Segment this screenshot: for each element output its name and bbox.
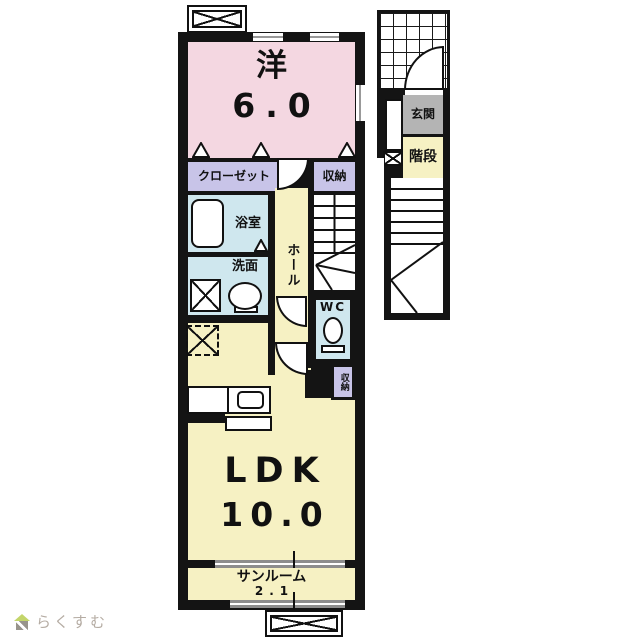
room-hall-label: ホール (285, 243, 299, 288)
room-closet-label: クローゼット (198, 170, 270, 183)
room-western-label: 洋 (256, 50, 287, 83)
room-stairs-landing: 階段 (403, 137, 443, 178)
kitchen-counter-low-icon (225, 416, 272, 431)
vent-window-cross-icon (192, 10, 242, 28)
toilet-base-icon (321, 345, 345, 353)
kitchen-sink-icon (237, 391, 264, 409)
site-watermark: らくすむ (14, 611, 108, 632)
room-storage-top: 収納 (314, 162, 355, 191)
stairs-icon (314, 195, 355, 290)
door-direction-icon (316, 368, 326, 380)
room-entrance: 玄関 (403, 95, 443, 134)
kitchen-counter-edge (187, 414, 225, 423)
wall (268, 323, 275, 375)
room-ldk-size: 10.0 (220, 498, 329, 533)
stairs-icon (391, 178, 443, 313)
annex-notch (377, 158, 384, 320)
folding-door-icon (338, 142, 356, 158)
room-western: 洋 6.0 (188, 42, 355, 158)
watermark-text: らくすむ (36, 611, 108, 632)
window-center-tick (293, 592, 295, 610)
room-closet: クローゼット (188, 162, 280, 191)
sliding-window-icon (230, 600, 345, 608)
toilet-icon (323, 317, 343, 344)
shoe-cabinet-end-icon (383, 151, 403, 166)
window-icon (356, 85, 365, 121)
folding-door-icon (252, 142, 270, 158)
bathtub-icon (191, 199, 224, 248)
door-arc-icon (277, 158, 309, 190)
vent-window-icon (265, 610, 343, 637)
room-storage-small: 収納 (331, 364, 355, 400)
room-washroom-label: 洗面 (232, 260, 258, 274)
floor-plan-image: 洋 6.0 クローゼット 収納 ホール 浴室 (0, 0, 640, 640)
room-stairs-label: 階段 (409, 150, 437, 165)
room-bath-label: 浴室 (235, 217, 261, 231)
window-icon (310, 33, 339, 41)
room-storage-top-label: 収納 (322, 170, 346, 183)
washbasin-icon (228, 282, 262, 310)
room-ldk-label: LDK (224, 453, 326, 490)
room-entrance-label: 玄関 (411, 108, 435, 121)
folding-door-icon (192, 142, 210, 158)
room-western-size: 6.0 (232, 89, 320, 124)
folding-door-icon (254, 239, 268, 252)
room-washroom: 洗面 (188, 257, 268, 315)
room-sunroom-size: 2.1 (255, 585, 294, 598)
room-sunroom: サンルーム 2.1 (188, 568, 355, 600)
room-sunroom-label: サンルーム (237, 570, 307, 585)
house-roof-icon (14, 614, 30, 621)
room-wc: WC (311, 295, 355, 364)
vent-window-cross-icon (270, 615, 338, 632)
appliance-space-icon (186, 325, 219, 356)
room-storage-small-label: 収納 (338, 373, 347, 391)
shoe-cabinet-icon (385, 99, 403, 151)
entrance-annex: 玄関 階段 (377, 10, 450, 320)
kitchen-counter-icon (187, 386, 271, 414)
window-icon (253, 33, 283, 41)
main-building: 洋 6.0 クローゼット 収納 ホール 浴室 (178, 32, 365, 610)
sliding-window-icon (215, 560, 345, 568)
house-body-icon (16, 621, 28, 630)
washing-machine-pan-icon (190, 279, 221, 312)
kitchen-divider (227, 388, 229, 412)
house-logo-icon (14, 614, 31, 630)
vent-window-icon (187, 5, 247, 33)
room-wc-label: WC (320, 301, 346, 314)
